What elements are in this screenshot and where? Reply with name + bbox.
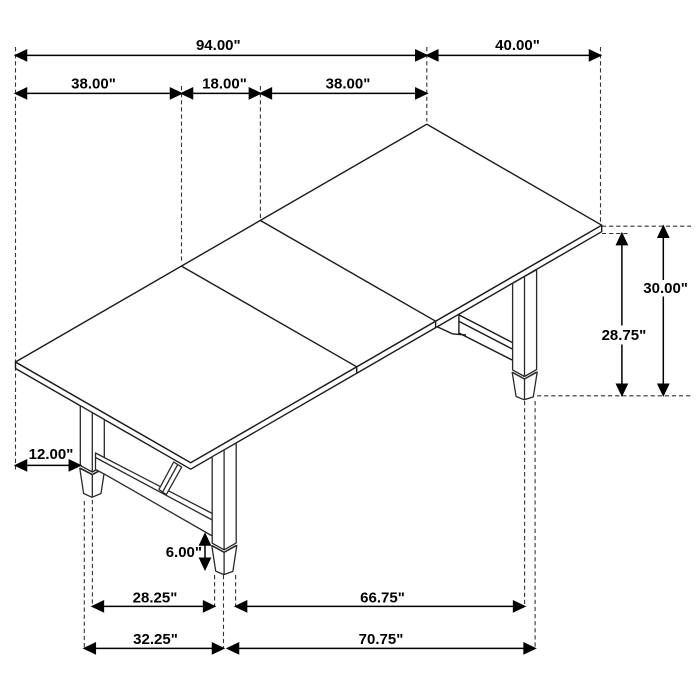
svg-text:30.00": 30.00" xyxy=(643,280,688,297)
svg-text:18.00": 18.00" xyxy=(202,75,247,92)
svg-text:28.25": 28.25" xyxy=(133,589,178,606)
svg-text:6.00": 6.00" xyxy=(166,544,202,561)
svg-text:66.75": 66.75" xyxy=(360,589,405,606)
svg-text:38.00": 38.00" xyxy=(326,75,371,92)
svg-text:12.00": 12.00" xyxy=(29,446,74,463)
svg-text:28.75": 28.75" xyxy=(602,327,647,344)
svg-text:32.25": 32.25" xyxy=(133,631,178,648)
svg-text:40.00": 40.00" xyxy=(495,37,540,54)
svg-text:94.00": 94.00" xyxy=(196,37,241,54)
svg-text:70.75": 70.75" xyxy=(359,631,404,648)
svg-text:38.00": 38.00" xyxy=(71,75,116,92)
